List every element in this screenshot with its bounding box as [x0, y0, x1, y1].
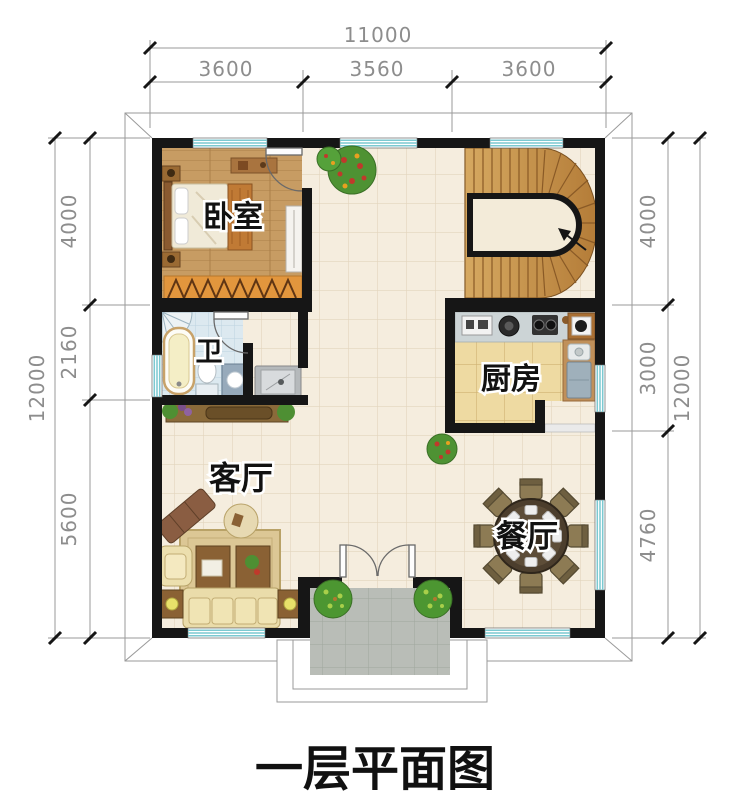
- kitchen-south-plant: [427, 434, 457, 464]
- floor-plan-page: 11000 3600 3560 3600 12000 4000 2160 560…: [0, 0, 750, 810]
- nightstand-lamp: [167, 169, 175, 177]
- table-plant: [245, 555, 259, 569]
- console-table: [162, 403, 295, 422]
- dim-right-total: 12000: [670, 354, 694, 423]
- stair-kitchen-wall: [445, 298, 605, 312]
- wok-burner-center: [505, 322, 514, 331]
- window-living-bottom: [188, 628, 265, 638]
- kitchen-threshold: [545, 424, 595, 432]
- dresser-item: [238, 161, 248, 170]
- room-label-living: 客厅: [209, 459, 273, 497]
- porch-bush: [414, 580, 452, 618]
- window-bedroom-top: [193, 138, 267, 148]
- nightstand-lamp: [167, 255, 175, 263]
- console-tray: [206, 407, 272, 419]
- dining-chair: [474, 525, 494, 547]
- bathroom-south-wall: [152, 395, 308, 405]
- porch-bush: [314, 580, 352, 618]
- table-lamp: [166, 598, 178, 610]
- kitchen-entry-notch: [545, 401, 595, 423]
- cooktop-burner: [534, 320, 544, 330]
- dim-top-seg-1: 3600: [199, 57, 254, 81]
- dim-left-seg-3: 5600: [57, 492, 81, 547]
- armchair-cushion: [165, 554, 186, 579]
- bedroom-east-wall: [302, 188, 312, 312]
- niche-wall: [298, 312, 308, 368]
- window-dining-bottom: [485, 628, 570, 638]
- black-pot: [575, 320, 587, 332]
- kitchen-west-wall: [445, 312, 455, 433]
- vanity-sink: [227, 372, 243, 388]
- dining-chair: [520, 573, 542, 593]
- pillow: [175, 218, 188, 244]
- dim-left-seg-2: 2160: [57, 325, 81, 380]
- room-label-kitchen: 厨房: [481, 362, 541, 397]
- dim-top-seg-3: 3600: [502, 57, 557, 81]
- bathtub-drain: [177, 382, 182, 387]
- pillow: [175, 188, 188, 214]
- sofa: [183, 588, 280, 628]
- dim-right-seg-2: 3000: [636, 341, 660, 396]
- room-label-dining: 餐厅: [496, 519, 558, 555]
- dim-top-total: 11000: [344, 23, 413, 47]
- table-flower: [254, 569, 260, 575]
- plan-title: 一层平面图: [255, 741, 495, 797]
- bedroom-south-wall: [152, 298, 312, 312]
- dim-left-seg-1: 4000: [57, 194, 81, 249]
- room-label-bathroom: 卫: [196, 337, 223, 368]
- stair-landing-island: [470, 196, 579, 254]
- dim-right-seg-3: 4760: [636, 508, 660, 563]
- dining-chair: [568, 525, 588, 547]
- bathtub-basin: [169, 334, 189, 388]
- kitchen-stub-wall: [535, 400, 545, 433]
- cooktop-burner: [546, 320, 556, 330]
- toilet-tank: [196, 384, 218, 396]
- window-bath-left: [152, 355, 162, 397]
- table-lamp: [284, 598, 296, 610]
- window-dining-right: [595, 500, 605, 590]
- dining-chair: [520, 479, 542, 499]
- room-label-bedroom: 卧室: [203, 200, 263, 235]
- washing-machine: [255, 366, 301, 398]
- console-flower: [184, 408, 192, 416]
- console-plant: [162, 403, 178, 419]
- staircase: [465, 148, 597, 298]
- floor-plan-drawing: 11000 3600 3560 3600 12000 4000 2160 560…: [0, 0, 750, 810]
- appliance-button: [466, 320, 474, 329]
- dresser-item: [260, 162, 266, 168]
- dim-right-seg-1: 4000: [636, 194, 660, 249]
- window-stair-top: [490, 138, 563, 148]
- table-book: [202, 560, 222, 576]
- bed-headboard: [164, 182, 172, 250]
- console-plant: [277, 403, 295, 421]
- dim-left-total: 12000: [25, 354, 49, 423]
- sink-drain: [575, 348, 583, 356]
- window-kitchen-right: [595, 365, 605, 412]
- dim-top-seg-2: 3560: [350, 57, 405, 81]
- appliance-dial: [278, 379, 284, 385]
- kitchen-south-wall: [445, 423, 545, 433]
- appliance-button: [478, 320, 488, 329]
